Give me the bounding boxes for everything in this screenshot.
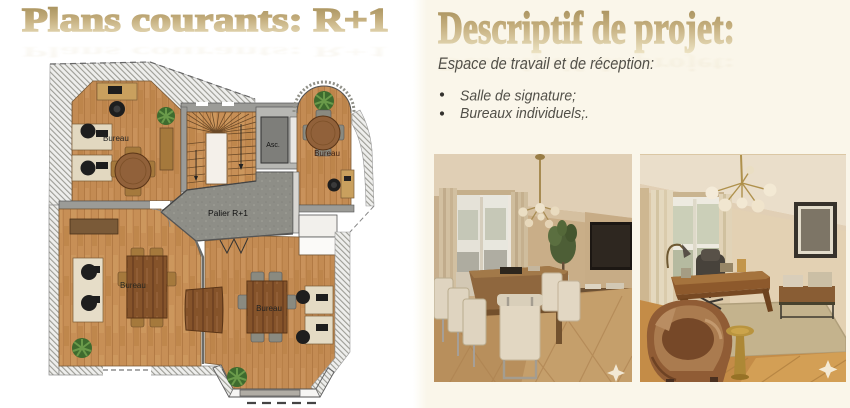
svg-text:Descriptif de projet:: Descriptif de projet: <box>438 3 735 53</box>
svg-text:Bureaux individuels;.: Bureaux individuels;. <box>460 105 589 122</box>
svg-text:Asc.: Asc. <box>266 142 280 149</box>
svg-text:Bureau: Bureau <box>256 304 282 313</box>
svg-text:Plans courants: R+1: Plans courants: R+1 <box>22 44 389 60</box>
svg-text:Bureau: Bureau <box>103 134 129 143</box>
svg-text:Salle de signature;: Salle de signature; <box>460 88 576 105</box>
svg-text:Plans courants: R+1: Plans courants: R+1 <box>22 2 389 39</box>
svg-text:Bureau: Bureau <box>314 149 340 158</box>
svg-text:Bureau: Bureau <box>120 281 146 290</box>
svg-text:Palier R+1: Palier R+1 <box>208 208 248 218</box>
svg-text:Espace de travail et de récept: Espace de travail et de réception: <box>438 55 654 73</box>
